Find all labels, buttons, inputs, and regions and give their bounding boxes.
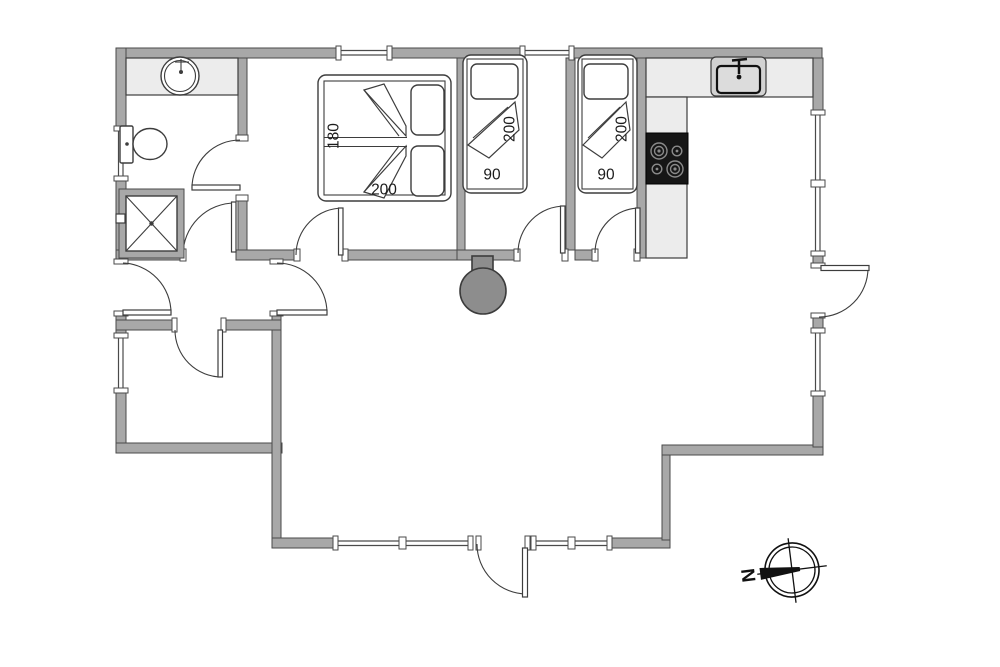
washbasin-icon (161, 57, 199, 95)
window-icon (336, 46, 392, 60)
window-icon (811, 110, 825, 256)
single-bed1-width-label: 90 (483, 167, 501, 184)
single-bed-left: 200 90 (463, 55, 527, 193)
window-icon (333, 536, 473, 550)
shower-icon (116, 189, 184, 258)
bathroom (116, 57, 238, 258)
single-bed1-length-label: 200 (502, 116, 519, 142)
window-icon (531, 536, 612, 550)
kitchen-sink-icon (711, 57, 766, 96)
single-bed2-length-label: 200 (614, 116, 631, 142)
doors (114, 135, 869, 597)
kitchen (646, 57, 813, 258)
double-bed-length-label: 200 (371, 182, 397, 199)
compass-north-label: N (738, 567, 761, 583)
double-bed-width-label: 180 (326, 123, 343, 149)
east-door (811, 263, 869, 318)
pillow (471, 64, 518, 99)
south-door (476, 536, 530, 597)
double-bedroom-door (294, 208, 348, 261)
bedroom1-door (514, 206, 568, 261)
compass-icon: N (735, 534, 831, 609)
wood-stove-icon (460, 256, 506, 314)
floor-plan-page: 180 200 200 90 200 90 N (0, 0, 1000, 667)
shower-room-door (180, 202, 236, 261)
toilet-icon (120, 126, 167, 163)
bathroom-door (192, 135, 248, 201)
pillow (584, 64, 628, 99)
stove-icon (646, 133, 688, 184)
shower-handle (116, 214, 125, 223)
bedroom2-door (592, 208, 640, 261)
utility-door (172, 318, 226, 377)
pillow (411, 85, 444, 135)
single-bed-right: 200 90 (578, 55, 637, 193)
window-icon (811, 328, 825, 396)
pillow (411, 146, 444, 196)
double-bed: 180 200 (318, 75, 451, 201)
window-icon (114, 333, 128, 393)
hall-living-door (270, 259, 327, 316)
single-bed2-width-label: 90 (597, 167, 615, 184)
floor-plan: 180 200 200 90 200 90 N (0, 0, 1000, 667)
entrance-door (114, 259, 171, 316)
